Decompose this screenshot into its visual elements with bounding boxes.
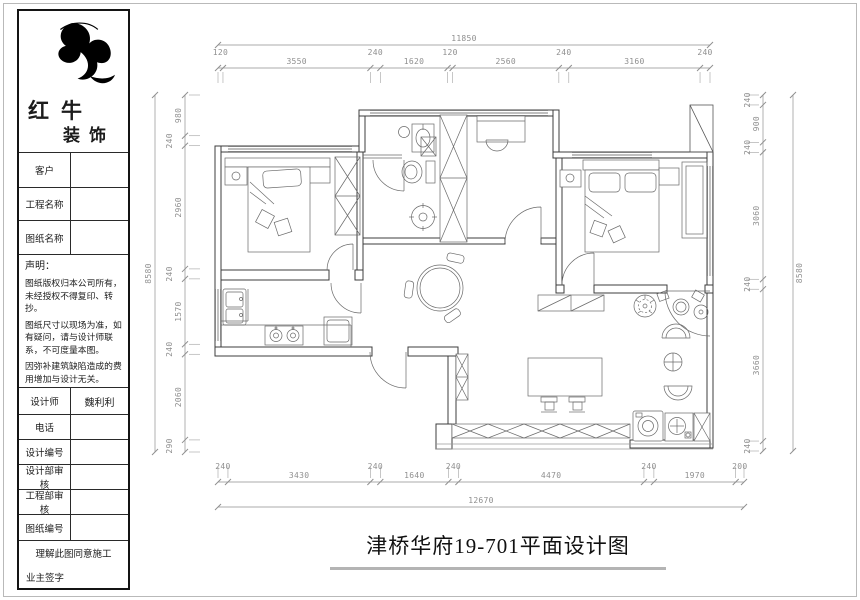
statement-line: 图纸版权归本公司所有，未经授权不得复印、转抄。 <box>25 277 123 314</box>
statement-block: 声明： 图纸版权归本公司所有，未经授权不得复印、转抄。 图纸尺寸以现场为准，如有… <box>19 255 128 388</box>
nightstand <box>560 170 581 187</box>
bedroom-left-door <box>327 244 353 270</box>
nightstand <box>225 167 247 185</box>
svg-text:3550: 3550 <box>286 57 306 66</box>
svg-text:240: 240 <box>165 342 174 357</box>
lounge-chair-inner <box>666 328 686 338</box>
pillow <box>262 169 301 189</box>
dining-chair <box>446 252 464 263</box>
svg-text:240: 240 <box>743 277 752 292</box>
statement-heading: 声明： <box>25 260 123 274</box>
field-row-sheet-no: 图纸编号 <box>19 515 128 541</box>
gas-stove <box>265 326 303 345</box>
svg-text:12670: 12670 <box>468 496 494 505</box>
nightstand <box>659 168 679 185</box>
wardrobe <box>335 157 360 235</box>
svg-text:3430: 3430 <box>289 471 309 480</box>
svg-text:8580: 8580 <box>144 263 153 283</box>
svg-text:290: 290 <box>165 438 174 453</box>
svg-text:240: 240 <box>215 462 230 471</box>
svg-text:240: 240 <box>641 462 656 471</box>
round-dining-table <box>417 265 463 311</box>
svg-text:240: 240 <box>165 266 174 281</box>
field-row-design-review: 设计部审核 <box>19 465 128 490</box>
svg-text:200: 200 <box>732 462 747 471</box>
svg-text:2560: 2560 <box>495 57 515 66</box>
statement-line: 图纸尺寸以现场为准，如有疑问，请与设计师联系，不可度量本图。 <box>25 319 123 356</box>
console-table-with-stools <box>528 358 602 412</box>
owner-signature-label: 业主签字 <box>19 565 128 588</box>
design-review-label: 设计部审核 <box>19 465 71 489</box>
project-name-label: 工程名称 <box>19 188 71 220</box>
small-table <box>673 299 689 315</box>
nightstand <box>308 167 330 183</box>
svg-text:8580: 8580 <box>795 263 804 283</box>
design-no-label: 设计编号 <box>19 440 71 464</box>
kitchen-sink <box>223 289 246 325</box>
bathroom-door <box>373 160 404 191</box>
headboard-shelf <box>583 160 659 170</box>
kitchen-door <box>331 283 361 313</box>
svg-text:240: 240 <box>743 92 752 107</box>
dining-set <box>404 252 465 323</box>
lounge-chair-inner <box>668 386 688 396</box>
bedroom-left-furniture <box>225 157 360 252</box>
sheet-no-label: 图纸编号 <box>19 515 71 540</box>
consent-note: 理解此图同意施工 <box>19 541 128 565</box>
info-row-drawing: 图纸名称 <box>19 221 128 255</box>
duct-shaft <box>690 105 713 152</box>
svg-text:120: 120 <box>442 48 457 57</box>
entry-door <box>370 352 406 388</box>
company-logo: 红牛 装饰 <box>19 11 128 153</box>
bedroom-right-door <box>562 253 594 285</box>
floor-plan-sheet: 1203550240162012025602403160240118502403… <box>0 0 860 600</box>
svg-text:240: 240 <box>743 140 752 155</box>
toilet <box>402 161 435 183</box>
svg-text:3160: 3160 <box>624 57 644 66</box>
study-furniture <box>477 116 525 151</box>
field-row-eng-review: 工程部审核 <box>19 490 128 515</box>
svg-text:1570: 1570 <box>174 301 183 321</box>
statement-line: 因弥补建筑缺陷造成的费用增加与设计无关。 <box>25 360 123 385</box>
storage-cabinet <box>538 295 604 311</box>
small-chair <box>692 290 705 302</box>
svg-text:120: 120 <box>213 48 228 57</box>
balcony-items <box>633 290 710 441</box>
svg-text:1620: 1620 <box>404 57 424 66</box>
designer-label: 设计师 <box>19 388 71 414</box>
svg-text:980: 980 <box>174 108 183 123</box>
refrigerator <box>324 317 352 345</box>
desk <box>477 116 525 142</box>
potted-plant <box>694 305 708 319</box>
headboard-shelf <box>225 158 330 167</box>
field-row-phone: 电话 <box>19 415 128 440</box>
svg-text:2960: 2960 <box>174 197 183 217</box>
title-block: 红牛 装饰 客户 工程名称 图纸名称 声明： 图纸版权归本公司所有，未经授权不得… <box>17 9 130 590</box>
svg-text:11850: 11850 <box>451 34 477 43</box>
balcony-cabinet <box>694 413 710 441</box>
svg-text:900: 900 <box>752 116 761 131</box>
info-row-project: 工程名称 <box>19 188 128 221</box>
drawing-title: 津桥华府19-701平面设计图 <box>330 530 666 570</box>
svg-text:3660: 3660 <box>752 355 761 375</box>
study-door <box>505 207 541 243</box>
washing-machine <box>633 411 663 441</box>
laundry-sink <box>665 413 693 441</box>
kitchen-fixtures <box>221 289 352 347</box>
bathroom-fixtures <box>363 124 437 231</box>
svg-text:1640: 1640 <box>404 471 424 480</box>
client-label: 客户 <box>19 153 71 187</box>
dining-chair <box>404 281 414 299</box>
potted-plant <box>634 295 656 317</box>
bedroom-right-furniture <box>560 160 707 252</box>
svg-text:4470: 4470 <box>541 471 561 480</box>
eng-review-label: 工程部审核 <box>19 490 71 514</box>
info-row-client: 客户 <box>19 153 128 188</box>
svg-text:240: 240 <box>743 438 752 453</box>
hall-wardrobe <box>440 115 467 242</box>
mirror <box>399 127 410 138</box>
svg-text:240: 240 <box>556 48 571 57</box>
svg-text:240: 240 <box>368 462 383 471</box>
living-furniture <box>528 295 604 412</box>
pillow <box>589 173 620 192</box>
field-row-designer: 设计师 魏利利 <box>19 388 128 415</box>
phone-label: 电话 <box>19 415 71 439</box>
svg-text:240: 240 <box>165 133 174 148</box>
field-row-design-no: 设计编号 <box>19 440 128 465</box>
drawing-name-label: 图纸名称 <box>19 221 71 254</box>
brand-name-bottom: 装饰 <box>63 121 115 146</box>
shower-drain <box>409 203 437 231</box>
shoe-cabinet <box>456 354 468 400</box>
svg-text:240: 240 <box>697 48 712 57</box>
bay-closet <box>682 162 707 238</box>
bull-logo-icon <box>37 17 115 95</box>
svg-text:1970: 1970 <box>685 471 705 480</box>
svg-text:240: 240 <box>446 462 461 471</box>
pillow <box>625 173 656 192</box>
svg-text:2060: 2060 <box>174 387 183 407</box>
svg-text:3060: 3060 <box>752 206 761 226</box>
designer-value: 魏利利 <box>71 394 128 409</box>
svg-text:240: 240 <box>368 48 383 57</box>
